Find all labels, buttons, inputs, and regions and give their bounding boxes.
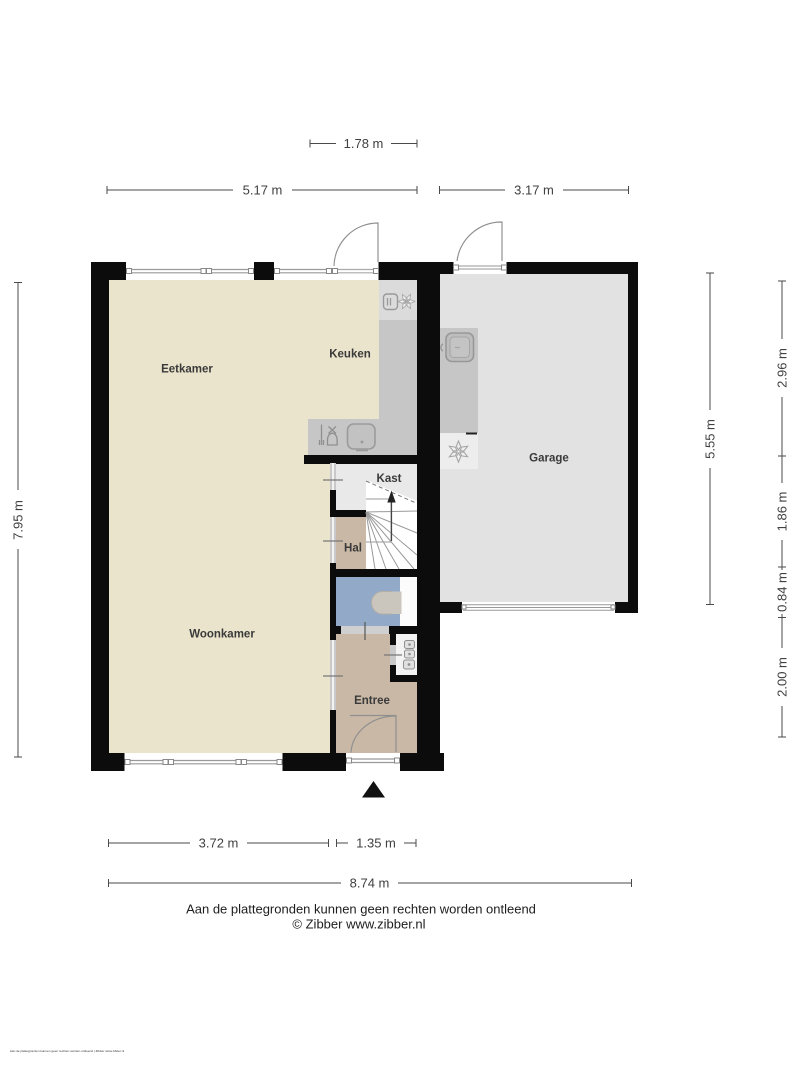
svg-text:Aan de plattegronden kunnen ge: Aan de plattegronden kunnen geen rechten… <box>186 902 536 917</box>
svg-text:5.17 m: 5.17 m <box>243 183 283 198</box>
svg-text:7.95 m: 7.95 m <box>11 500 26 540</box>
svg-text:2.00 m: 2.00 m <box>775 657 790 697</box>
svg-text:Woonkamer: Woonkamer <box>189 629 255 641</box>
svg-text:Aan de plattegronden kunnen ge: Aan de plattegronden kunnen geen rechten… <box>10 1049 125 1053</box>
svg-text:Garage: Garage <box>529 453 569 465</box>
svg-text:Hal: Hal <box>344 543 362 555</box>
svg-text:1.35 m: 1.35 m <box>356 836 396 851</box>
svg-text:Keuken: Keuken <box>329 349 371 361</box>
svg-text:3.17 m: 3.17 m <box>514 183 554 198</box>
svg-text:Kast: Kast <box>377 473 402 485</box>
svg-text:Eetkamer: Eetkamer <box>161 364 213 376</box>
svg-text:Entree: Entree <box>354 695 390 707</box>
svg-text:2.96 m: 2.96 m <box>775 348 790 388</box>
svg-text:0.84 m: 0.84 m <box>775 572 790 612</box>
svg-text:1.86 m: 1.86 m <box>775 492 790 532</box>
svg-text:8.74 m: 8.74 m <box>350 876 390 891</box>
svg-text:1.78 m: 1.78 m <box>344 136 384 151</box>
svg-text:© Zibber www.zibber.nl: © Zibber www.zibber.nl <box>292 917 425 932</box>
svg-text:5.55 m: 5.55 m <box>703 419 718 459</box>
svg-text:3.72 m: 3.72 m <box>199 836 239 851</box>
